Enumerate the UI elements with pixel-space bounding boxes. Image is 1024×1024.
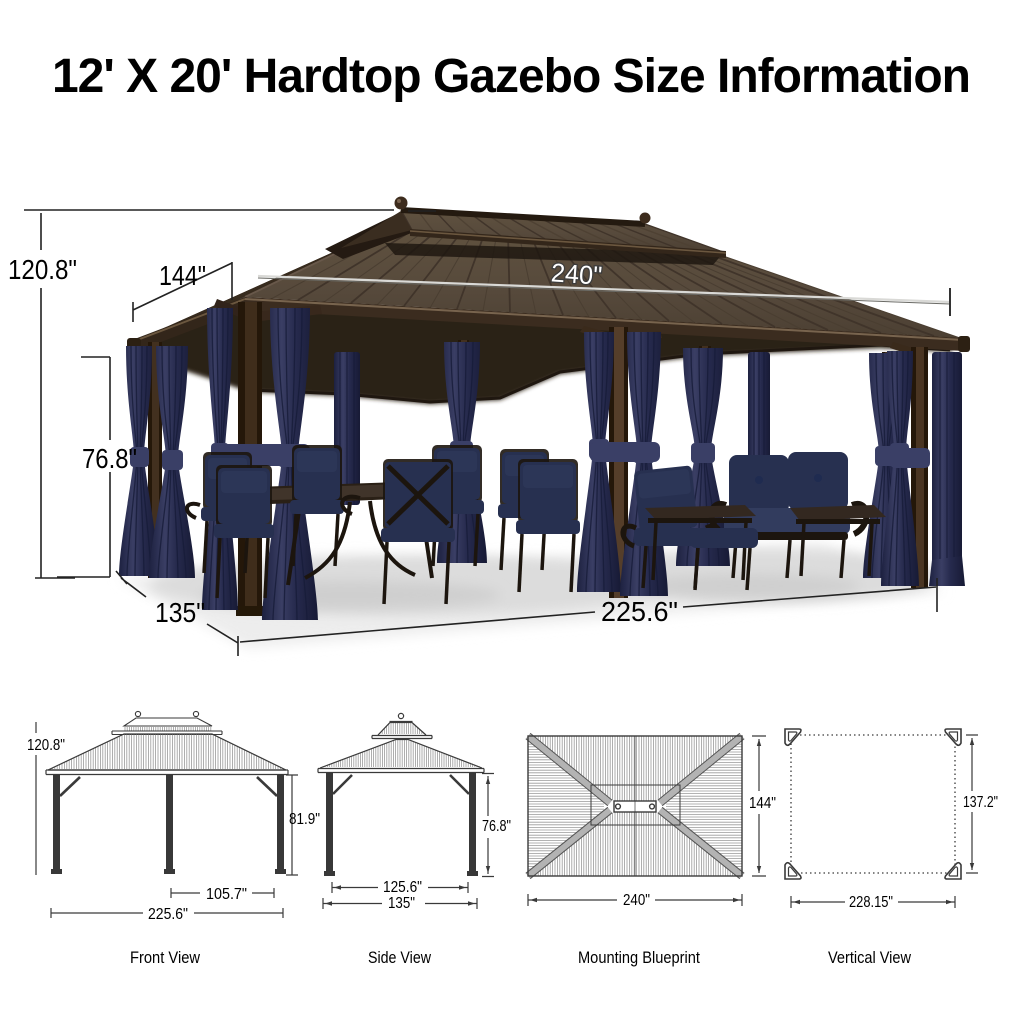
svg-text:120.8": 120.8" — [27, 737, 65, 754]
svg-text:Mounting Blueprint: Mounting Blueprint — [578, 949, 700, 967]
svg-text:120.8": 120.8" — [8, 254, 77, 285]
svg-text:105.7": 105.7" — [206, 886, 247, 903]
svg-text:Front View: Front View — [130, 949, 200, 967]
svg-text:135": 135" — [388, 895, 415, 912]
svg-text:81.9": 81.9" — [289, 811, 320, 828]
svg-text:135": 135" — [155, 597, 205, 628]
svg-text:137.2": 137.2" — [963, 794, 998, 811]
svg-text:Side View: Side View — [368, 949, 431, 967]
svg-text:144": 144" — [749, 795, 776, 812]
svg-text:Vertical View: Vertical View — [828, 949, 911, 967]
svg-text:225.6": 225.6" — [601, 596, 678, 627]
svg-text:76.8": 76.8" — [82, 443, 137, 474]
svg-text:12' X 20' Hardtop Gazebo Size: 12' X 20' Hardtop Gazebo Size Informatio… — [52, 50, 970, 103]
svg-text:225.6": 225.6" — [148, 906, 188, 923]
svg-text:125.6": 125.6" — [383, 879, 422, 896]
svg-text:240": 240" — [623, 892, 650, 909]
svg-text:76.8": 76.8" — [482, 818, 511, 835]
svg-text:240": 240" — [550, 257, 603, 290]
svg-text:144": 144" — [159, 260, 206, 291]
svg-text:228.15": 228.15" — [849, 894, 893, 911]
